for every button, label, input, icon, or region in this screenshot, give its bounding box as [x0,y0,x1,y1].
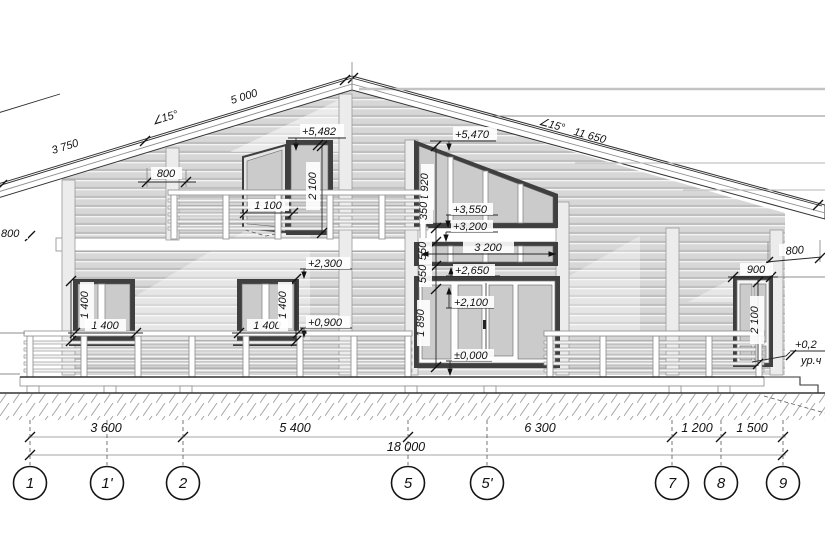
svg-text:+2,100: +2,100 [454,297,489,309]
grid-bubble-8: 8 [717,475,726,492]
svg-text:+2,300: +2,300 [308,258,343,270]
dim-segment-5: 1 500 [736,421,767,435]
grid-bubble-2: 2 [178,475,188,492]
dim-segment-1: 3 600 [90,421,121,435]
svg-text:+0,2: +0,2 [795,339,817,351]
grid-bubble-5a: 5' [481,475,493,492]
dim-gable-window-height: 1 920 [419,172,431,200]
svg-text:+3,550: +3,550 [453,204,488,216]
dim-band-window-width: 3 200 [474,242,502,254]
deck-and-ground [0,377,825,420]
svg-text:+2,650: +2,650 [455,265,490,277]
dim-door-section-height: 1 890 [415,308,427,336]
dim-balcony-door-height: 2 100 [307,171,319,200]
corner-post [666,228,679,375]
dim-right-door-width: 900 [747,264,766,276]
dim-window1-height: 1 400 [79,290,91,318]
dim-total: 18 000 [387,440,425,454]
dim-window1-width: 1 400 [91,320,119,332]
dim-right-door-height: 2 100 [749,305,761,334]
svg-text:ур.ч: ур.ч [800,355,822,367]
dim-segment-2: 5 400 [279,421,310,435]
svg-text:+0,900: +0,900 [308,317,343,329]
dim-roof-left-angle: ∠15° [151,108,180,127]
dim-door-head-gap: 550 [417,264,429,283]
svg-text:+5,482: +5,482 [302,126,336,138]
ground-hatch [0,394,825,420]
right-steps [764,377,818,393]
level-band-window-bottom: +2,650 [446,264,500,277]
grid-bubble-1: 1 [26,475,34,492]
dim-band-window-height: 550 [417,241,429,260]
dim-segment-3: 6 300 [524,421,555,435]
dim-window2-width: 1 400 [253,320,281,332]
dim-roof-left-segment: 3 750 [50,137,81,157]
elevation-drawing: 3 750 ∠15° 5 000 ∠15° 11 650 800 800 800… [0,0,825,550]
door-handle [483,320,486,329]
dim-balcony-door-width: 1 100 [254,200,282,212]
dim-roof-left-slope: 5 000 [229,87,260,107]
grid-bubble-1a: 1' [101,475,113,492]
dim-left-edge-overhang: 800 [1,228,20,240]
bottom-dimensions: 3 600 5 400 6 300 1 200 1 500 18 000 [25,420,788,465]
svg-text:+5,470: +5,470 [455,129,490,141]
grid-bubble-5: 5 [404,475,413,492]
dim-segment-4: 1 200 [681,421,712,435]
grid-bubble-7: 7 [668,475,677,492]
dim-window2-height: 1 400 [277,290,289,318]
svg-text:+3,200: +3,200 [453,221,488,233]
dim-right-overhang: 800 [785,244,805,258]
dim-band-gap: 350 [418,201,430,220]
dim-gable-overhang: 800 [157,168,176,180]
svg-text:±0,000: ±0,000 [454,350,488,362]
grid-bubbles: 1 1' 2 5 5' 7 8 9 [14,467,800,500]
balcony-floor-band [56,238,428,251]
grid-bubble-9: 9 [779,475,788,492]
